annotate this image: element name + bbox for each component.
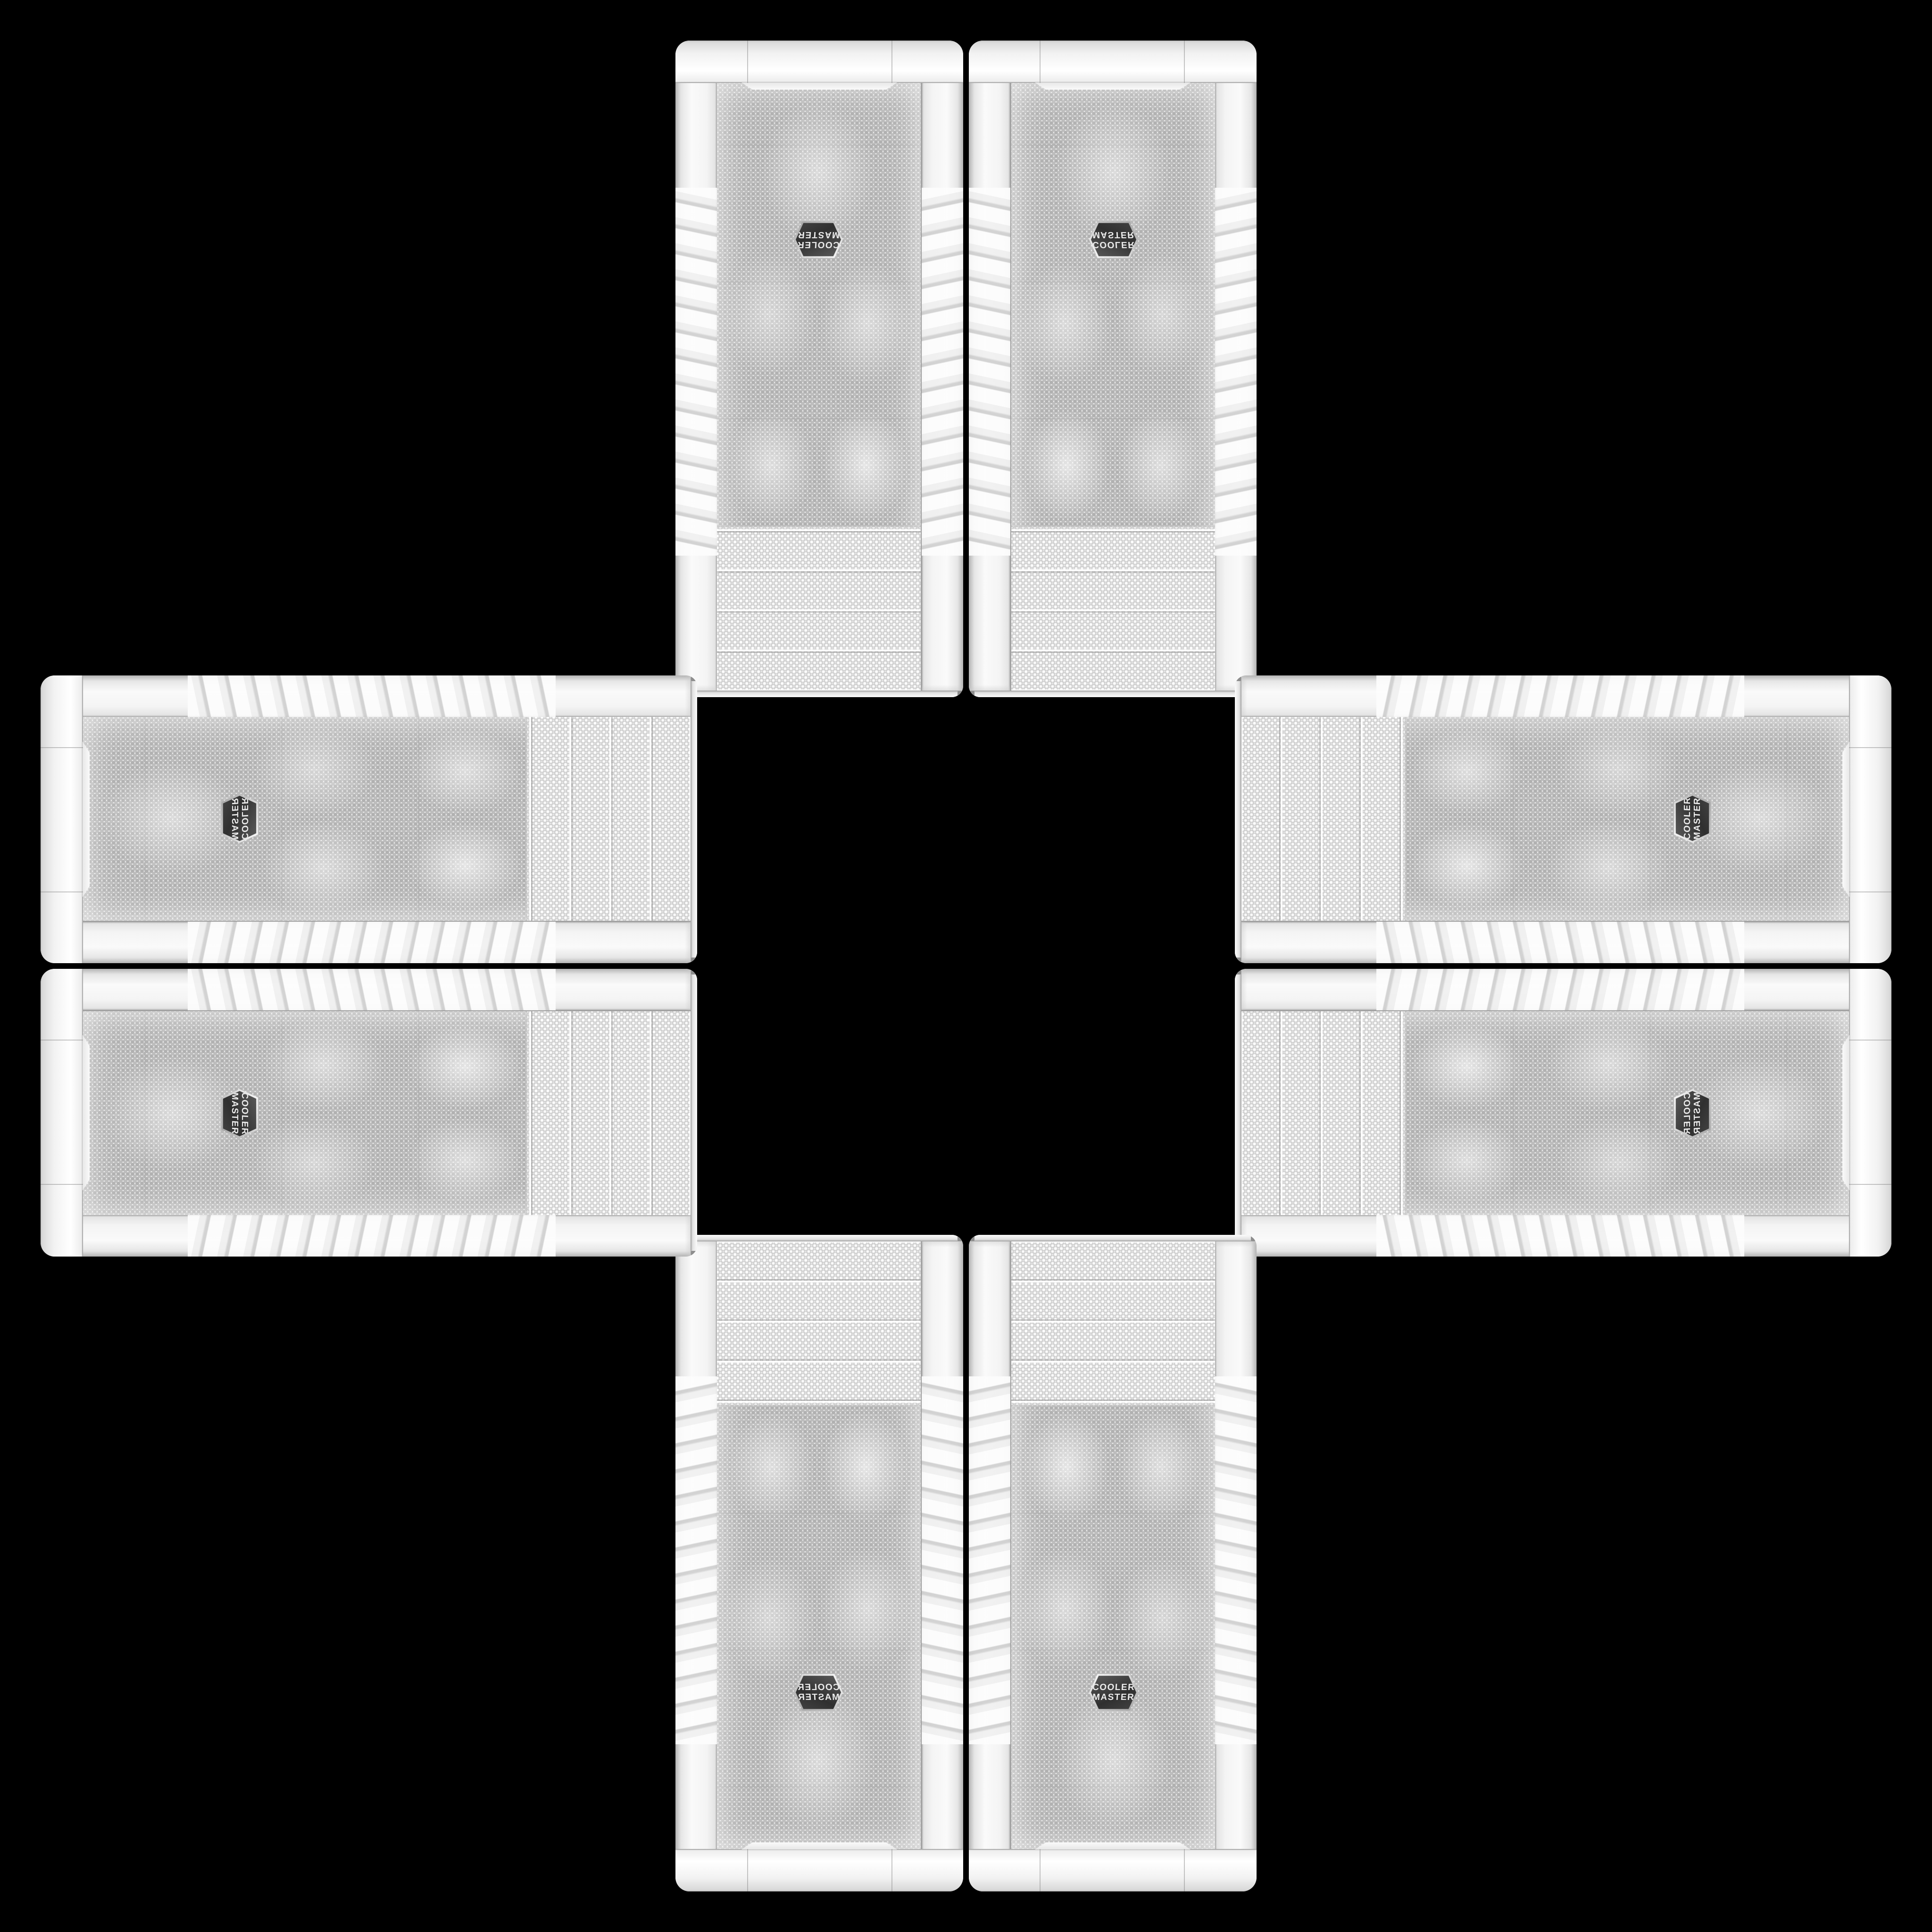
case-right-top: COOLER MASTER: [1235, 675, 1891, 963]
badge-hexagon: COOLER MASTER: [1091, 1674, 1136, 1711]
badge-text-line2: MASTER: [1092, 230, 1135, 240]
case-side-panel-inner: [1235, 675, 1849, 717]
badge-text-line1: COOLER: [1092, 1683, 1135, 1692]
side-ridges-icon: [675, 1376, 717, 1744]
badge-text-line1: COOLER: [797, 1683, 840, 1692]
arm-right: COOLER MASTER COOLER MASTER: [1235, 675, 1891, 1257]
case-side-panel-inner: [1235, 1215, 1849, 1257]
rear-trim: [691, 677, 697, 961]
rear-trim: [691, 971, 697, 1255]
rear-trim: [677, 1235, 961, 1241]
badge-text-line1: COOLER: [1683, 797, 1692, 840]
front-cap: [675, 1849, 963, 1891]
mesh-highlight: [716, 83, 921, 527]
mesh-front-panel: COOLER MASTER: [1241, 1010, 1849, 1217]
drive-bay-vents: [716, 1241, 921, 1406]
side-ridges-icon: [1376, 969, 1744, 1010]
drive-bay-vents: [716, 526, 921, 691]
drive-bay-vents: [526, 716, 691, 921]
case-side-panel-outer: [969, 1235, 1010, 1849]
rear-trim: [677, 691, 961, 697]
cooler-master-badge: COOLER MASTER: [1091, 1674, 1136, 1711]
side-ridges-icon: [1376, 675, 1744, 717]
mesh-highlight: [83, 716, 527, 921]
badge-hexagon: COOLER MASTER: [1674, 1091, 1711, 1136]
drive-bay-vents: [1241, 1011, 1406, 1216]
badge-hexagon: COOLER MASTER: [221, 796, 258, 841]
front-cap: [969, 41, 1257, 83]
mesh-front-panel: COOLER MASTER: [715, 1241, 922, 1849]
mesh-highlight: [83, 1011, 527, 1216]
side-ridges-icon: [969, 1376, 1010, 1744]
rear-trim: [971, 1235, 1255, 1241]
side-ridges-icon: [675, 188, 717, 556]
badge-text-line2: MASTER: [1693, 797, 1702, 840]
case-side-panel-outer: [83, 969, 697, 1010]
drive-bay-vents: [526, 1011, 691, 1216]
mesh-front-panel: COOLER MASTER: [715, 83, 922, 691]
badge-hexagon: COOLER MASTER: [796, 221, 841, 258]
case-left-bottom: COOLER MASTER: [41, 969, 697, 1257]
badge-hexagon: COOLER MASTER: [1674, 796, 1711, 841]
cooler-master-badge: COOLER MASTER: [1091, 221, 1136, 258]
case-side-panel-outer: [1235, 969, 1849, 1010]
side-ridges-icon: [1215, 1376, 1257, 1744]
badge-text-line2: MASTER: [797, 1693, 840, 1702]
rear-trim: [1235, 677, 1241, 961]
drive-bay-vents: [1011, 526, 1216, 691]
side-ridges-icon: [188, 922, 556, 963]
case-right-bottom: COOLER MASTER: [1235, 969, 1891, 1257]
case-side-panel-outer: [922, 83, 963, 697]
badge-text-line2: MASTER: [1693, 1092, 1702, 1135]
case-side-panel-inner: [83, 675, 697, 717]
arm-top: COOLER MASTER COOLER MASTER: [675, 41, 1257, 697]
rear-trim: [971, 691, 1255, 697]
case-side-panel-inner: [675, 83, 717, 697]
cooler-master-badge: COOLER MASTER: [796, 1674, 841, 1711]
badge-text-line2: MASTER: [230, 797, 240, 840]
badge-hexagon: COOLER MASTER: [1091, 221, 1136, 258]
badge-text-line1: COOLER: [240, 797, 250, 840]
mesh-highlight: [1011, 83, 1216, 527]
case-side-panel-outer: [83, 922, 697, 963]
front-cap: [969, 1849, 1257, 1891]
side-ridges-icon: [188, 675, 556, 717]
side-ridges-icon: [1376, 922, 1744, 963]
side-ridges-icon: [922, 188, 963, 556]
arm-bottom: COOLER MASTER COOLER MASTER: [675, 1235, 1257, 1891]
front-cap: [41, 675, 83, 963]
cooler-master-badge: COOLER MASTER: [1674, 1091, 1711, 1136]
collage-canvas: COOLER MASTER COOLER MASTER: [0, 0, 1932, 1932]
badge-text-line1: COOLER: [1092, 240, 1135, 250]
cooler-master-badge: COOLER MASTER: [221, 796, 258, 841]
case-top-left: COOLER MASTER: [675, 41, 963, 697]
arm-left: COOLER MASTER COOLER MASTER: [41, 675, 697, 1257]
side-ridges-icon: [922, 1376, 963, 1744]
mesh-highlight: [1405, 1011, 1849, 1216]
case-side-panel-inner: [1215, 1235, 1257, 1849]
badge-text-line1: COOLER: [240, 1092, 250, 1135]
case-bottom-right: COOLER MASTER: [969, 1235, 1257, 1891]
mesh-front-panel: COOLER MASTER: [1010, 83, 1217, 691]
badge-text-line2: MASTER: [230, 1092, 240, 1135]
side-ridges-icon: [969, 188, 1010, 556]
case-side-panel-outer: [922, 1235, 963, 1849]
case-side-panel-inner: [83, 1215, 697, 1257]
badge-text-line1: COOLER: [1683, 1092, 1692, 1135]
side-ridges-icon: [188, 1215, 556, 1257]
front-cap: [1849, 675, 1891, 963]
front-cap: [1849, 969, 1891, 1257]
rear-trim: [1235, 971, 1241, 1255]
side-ridges-icon: [1215, 188, 1257, 556]
front-cap: [41, 969, 83, 1257]
case-left-top: COOLER MASTER: [41, 675, 697, 963]
badge-hexagon: COOLER MASTER: [796, 1674, 841, 1711]
badge-hexagon: COOLER MASTER: [221, 1091, 258, 1136]
case-side-panel-outer: [969, 83, 1010, 697]
case-side-panel-inner: [1215, 83, 1257, 697]
badge-text-line2: MASTER: [1092, 1693, 1135, 1702]
badge-text-line2: MASTER: [797, 230, 840, 240]
mesh-front-panel: COOLER MASTER: [1241, 715, 1849, 922]
case-side-panel-outer: [1235, 922, 1849, 963]
side-ridges-icon: [1376, 1215, 1744, 1257]
cooler-master-badge: COOLER MASTER: [1674, 796, 1711, 841]
front-cap: [675, 41, 963, 83]
cooler-master-badge: COOLER MASTER: [796, 221, 841, 258]
case-side-panel-inner: [675, 1235, 717, 1849]
side-ridges-icon: [188, 969, 556, 1010]
mesh-highlight: [716, 1405, 921, 1849]
mesh-front-panel: COOLER MASTER: [1010, 1241, 1217, 1849]
mesh-front-panel: COOLER MASTER: [83, 1010, 691, 1217]
mesh-highlight: [1405, 716, 1849, 921]
drive-bay-vents: [1011, 1241, 1216, 1406]
badge-text-line1: COOLER: [797, 240, 840, 250]
mesh-front-panel: COOLER MASTER: [83, 715, 691, 922]
case-top-right: COOLER MASTER: [969, 41, 1257, 697]
mesh-highlight: [1011, 1405, 1216, 1849]
cooler-master-badge: COOLER MASTER: [221, 1091, 258, 1136]
case-bottom-left: COOLER MASTER: [675, 1235, 963, 1891]
drive-bay-vents: [1241, 716, 1406, 921]
